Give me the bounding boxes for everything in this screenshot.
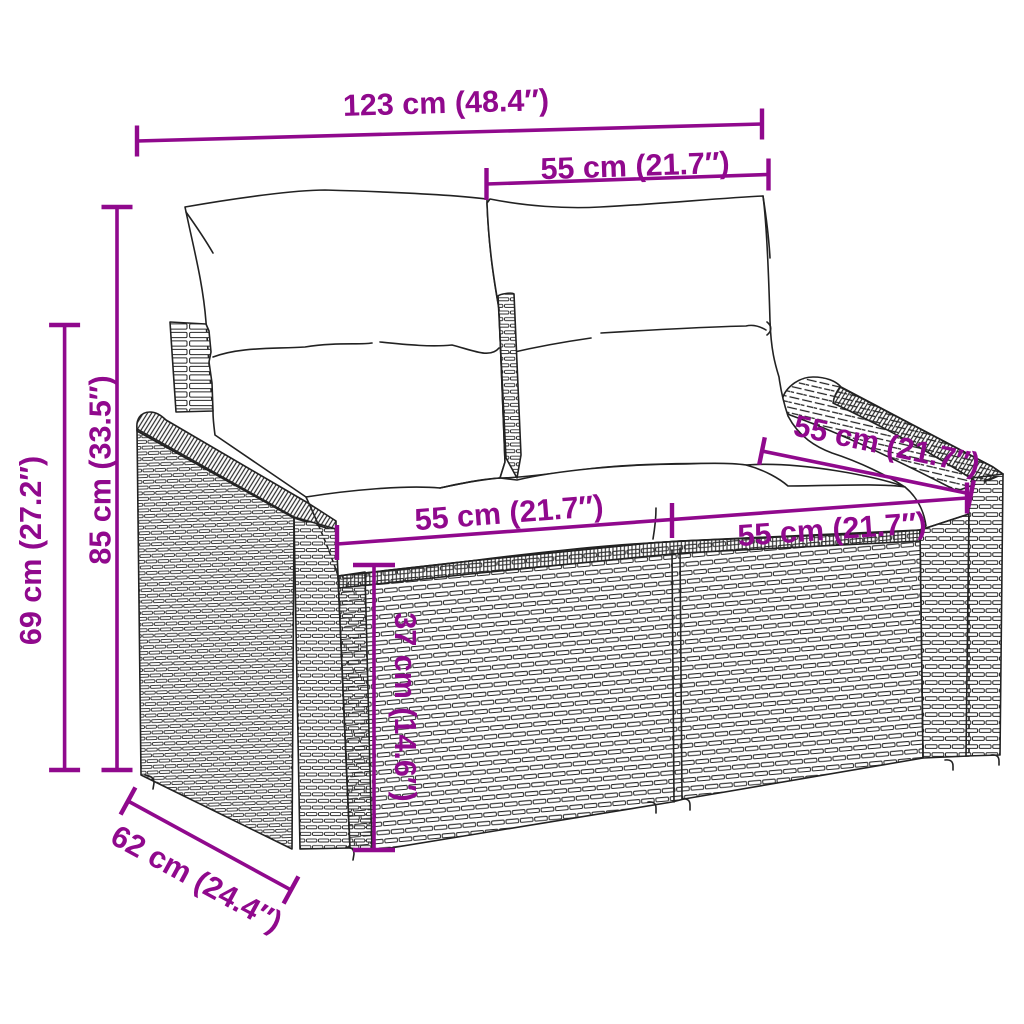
svg-text:123 cm (48.4″): 123 cm (48.4″) <box>342 83 549 123</box>
svg-text:55 cm (21.7″): 55 cm (21.7″) <box>540 146 730 187</box>
svg-text:85 cm (33.5″): 85 cm (33.5″) <box>84 375 118 564</box>
svg-text:37 cm (14.6″): 37 cm (14.6″) <box>388 612 422 801</box>
svg-text:69 cm (27.2″): 69 cm (27.2″) <box>14 456 48 645</box>
